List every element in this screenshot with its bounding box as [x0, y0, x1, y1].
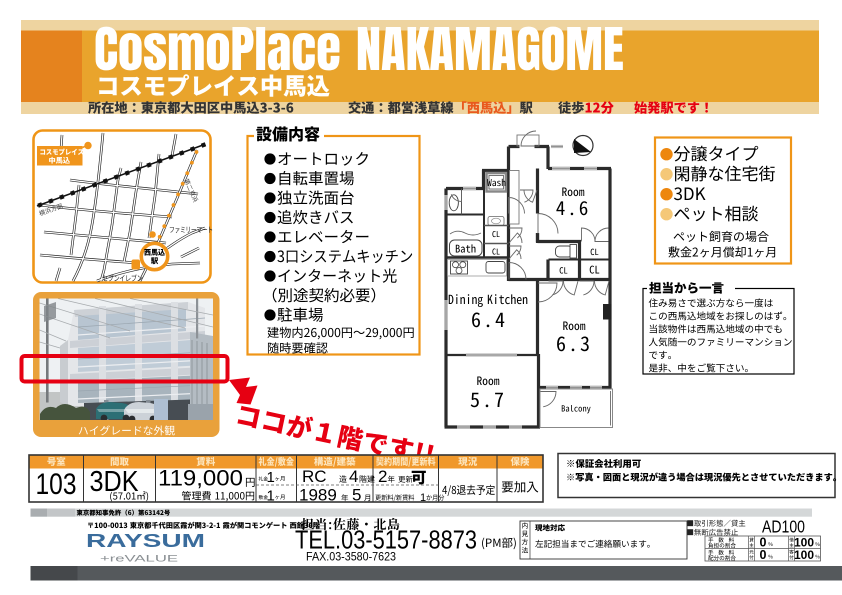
svg-text:RAYSUM: RAYSUM — [86, 530, 205, 551]
svg-text:100: 100 — [794, 548, 814, 562]
svg-text:1: 1 — [267, 469, 275, 486]
svg-text:+reVALUE: +reVALUE — [100, 554, 178, 565]
svg-text:0: 0 — [760, 548, 767, 562]
svg-text:119,000: 119,000 — [158, 466, 243, 491]
svg-text:1989: 1989 — [299, 486, 337, 505]
svg-text:103: 103 — [36, 468, 77, 501]
svg-text:FAX.03-3580-7623: FAX.03-3580-7623 — [306, 550, 396, 564]
svg-text:1: 1 — [267, 488, 275, 505]
svg-text:5: 5 — [352, 486, 361, 505]
svg-text:1: 1 — [420, 492, 426, 504]
svg-text:4: 4 — [349, 467, 358, 486]
svg-text:AD100: AD100 — [762, 517, 805, 537]
svg-text:RC: RC — [302, 467, 327, 486]
svg-text:2: 2 — [378, 467, 387, 486]
